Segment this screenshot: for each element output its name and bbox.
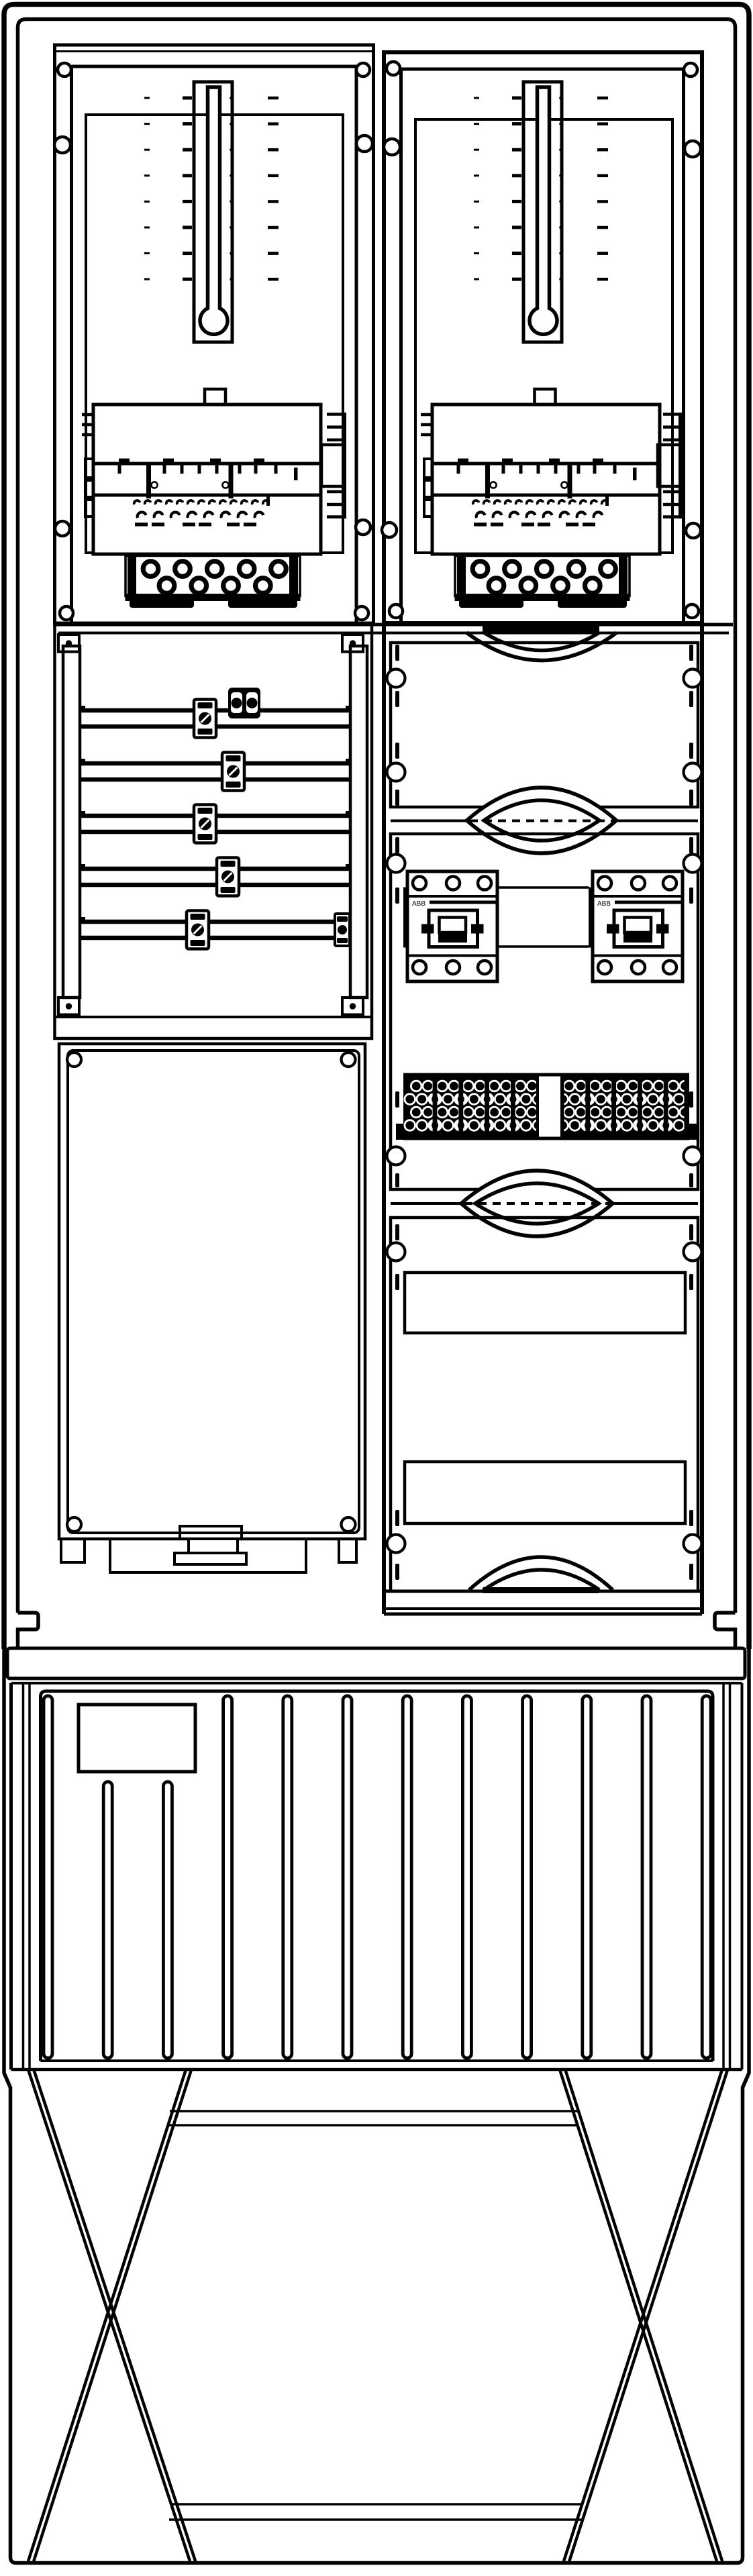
svg-text:ABB: ABB (597, 900, 611, 908)
svg-text:ABB: ABB (412, 900, 425, 908)
